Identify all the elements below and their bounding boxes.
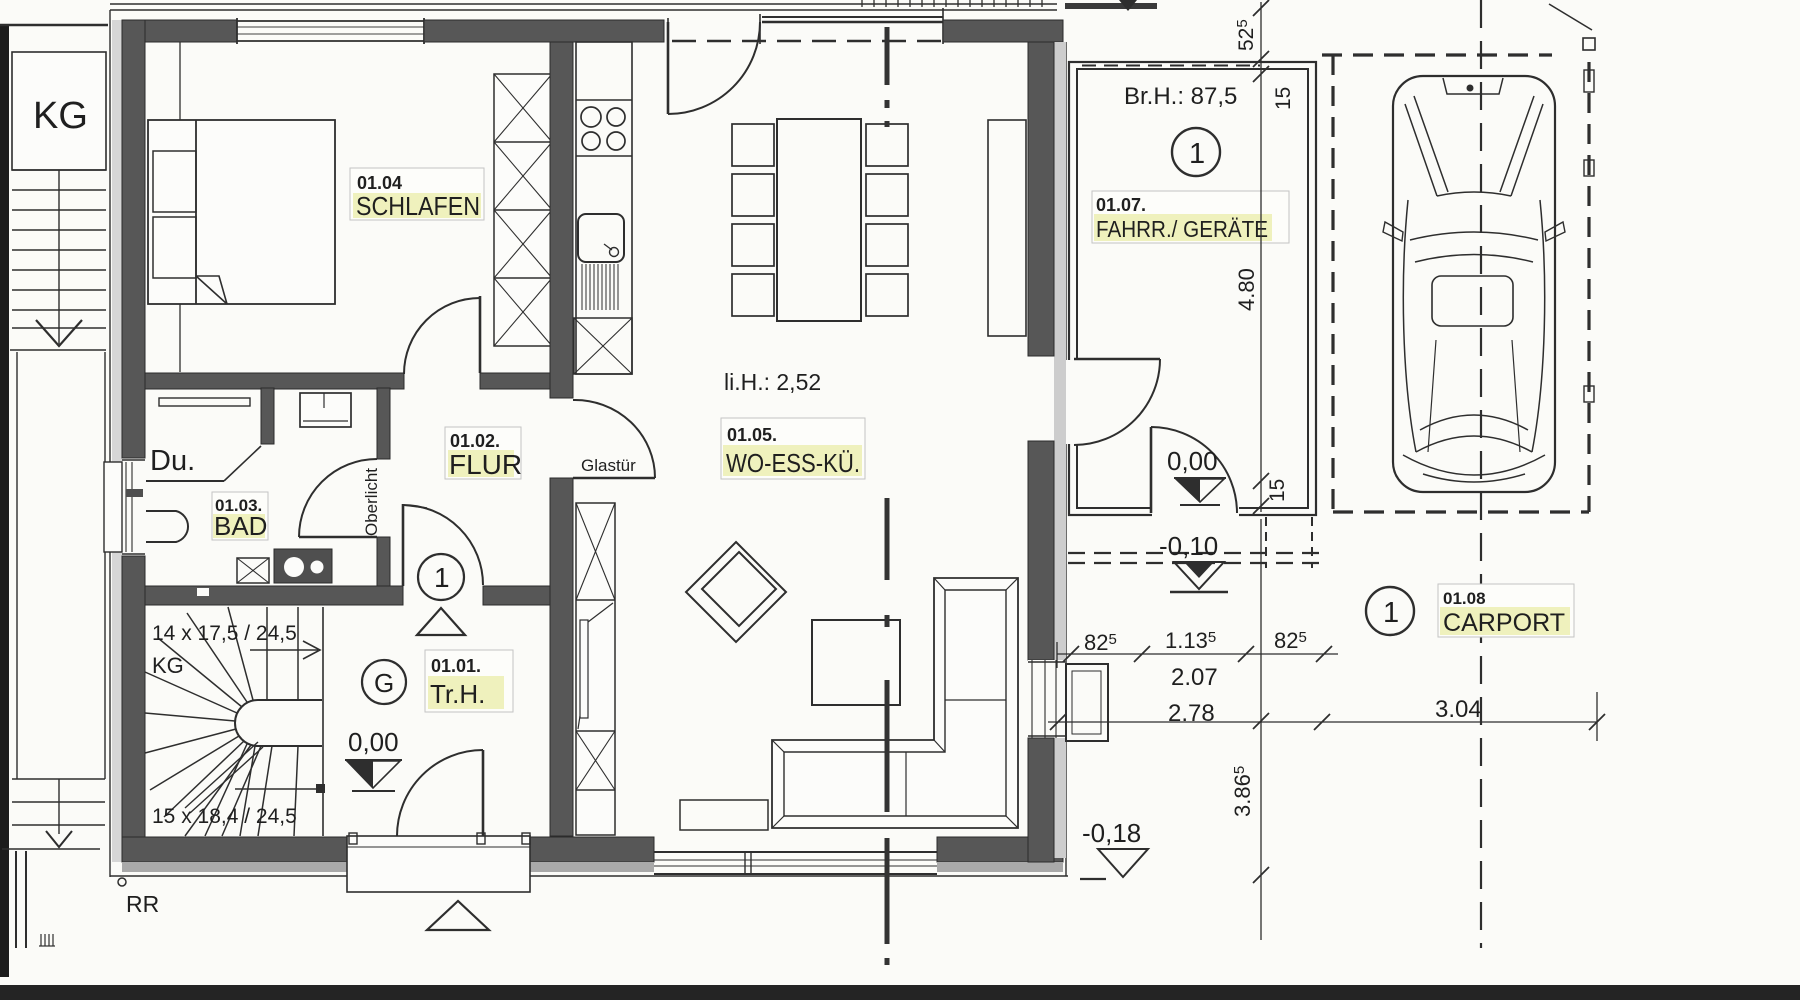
svg-text:KG: KG — [33, 95, 88, 137]
svg-text:-0,10: -0,10 — [1159, 531, 1218, 561]
svg-text:01.02.: 01.02. — [450, 431, 500, 451]
svg-text:0,00: 0,00 — [348, 727, 399, 757]
svg-text:01.04: 01.04 — [357, 173, 402, 193]
svg-text:2.78: 2.78 — [1168, 700, 1215, 727]
svg-text:01.08: 01.08 — [1443, 589, 1486, 608]
svg-text:01.05.: 01.05. — [727, 425, 777, 445]
svg-text:li.H.: 2,52: li.H.: 2,52 — [724, 369, 821, 395]
svg-text:15 x 18,4 / 24,5: 15 x 18,4 / 24,5 — [152, 805, 297, 828]
svg-text:Oberlicht: Oberlicht — [362, 468, 381, 536]
svg-text:KG: KG — [152, 653, 184, 678]
svg-text:Tr.H.: Tr.H. — [430, 679, 485, 709]
svg-text:Glastür: Glastür — [581, 456, 636, 475]
svg-text:3.04: 3.04 — [1435, 696, 1482, 723]
svg-text:2.07: 2.07 — [1171, 664, 1218, 691]
svg-text:FAHRR./ GERÄTE: FAHRR./ GERÄTE — [1096, 216, 1268, 242]
svg-text:4.80: 4.80 — [1234, 268, 1259, 311]
svg-text:FLUR: FLUR — [449, 449, 522, 480]
svg-text:BAD: BAD — [214, 511, 267, 541]
svg-text:0,00: 0,00 — [1167, 446, 1218, 476]
svg-text:CARPORT: CARPORT — [1443, 609, 1565, 637]
svg-text:WO-ESS-KÜ.: WO-ESS-KÜ. — [726, 448, 860, 478]
svg-text:15: 15 — [1272, 87, 1295, 110]
svg-text:01.01.: 01.01. — [431, 656, 481, 676]
svg-text:1: 1 — [1383, 597, 1399, 629]
svg-text:15: 15 — [1266, 479, 1289, 502]
svg-text:RR: RR — [126, 891, 159, 917]
svg-text:1: 1 — [434, 562, 450, 593]
svg-text:-0,18: -0,18 — [1082, 818, 1141, 848]
svg-text:G: G — [374, 668, 394, 698]
svg-text:1: 1 — [1189, 138, 1205, 170]
svg-text:01.07.: 01.07. — [1096, 195, 1146, 215]
svg-text:Du.: Du. — [150, 445, 195, 477]
svg-text:SCHLAFEN: SCHLAFEN — [356, 191, 480, 221]
svg-text:Br.H.: 87,5: Br.H.: 87,5 — [1124, 83, 1237, 110]
svg-text:14 x 17,5 / 24,5: 14 x 17,5 / 24,5 — [152, 622, 297, 645]
